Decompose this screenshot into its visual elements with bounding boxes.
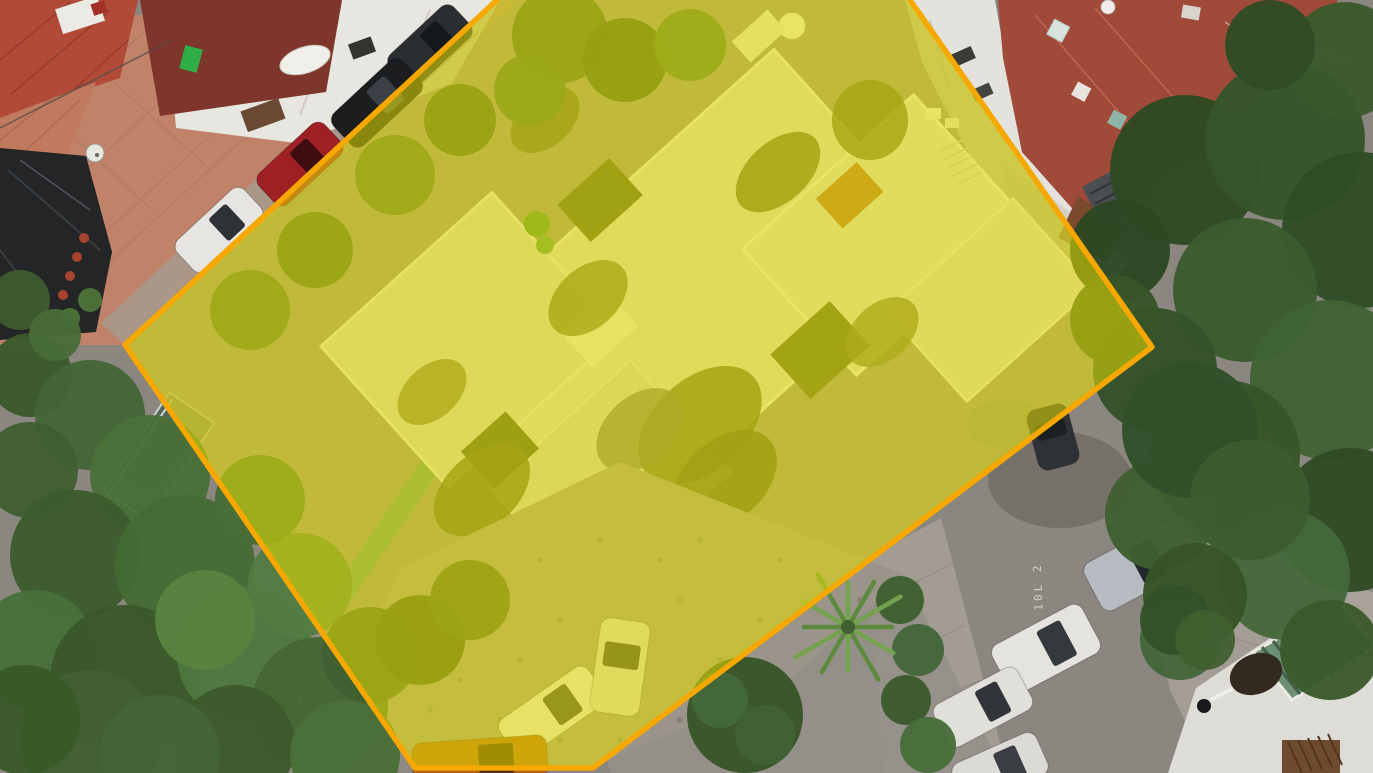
tree-canopy [155, 570, 255, 670]
chimney [1101, 0, 1115, 14]
aerial-photograph: Z 10L 2 [0, 0, 1373, 773]
tree-canopy [29, 309, 81, 361]
tree-canopy [876, 576, 924, 624]
tree-canopy [900, 717, 956, 773]
aerial-scene: Z 10L 2 [0, 0, 1373, 773]
dark-pot [1197, 699, 1211, 713]
tree-canopy [1175, 610, 1235, 670]
tree-canopy [735, 705, 795, 765]
satellite-dish [86, 144, 104, 162]
tree-canopy [1190, 440, 1310, 560]
tree-canopy [892, 624, 944, 676]
tree-canopy [1225, 0, 1315, 90]
